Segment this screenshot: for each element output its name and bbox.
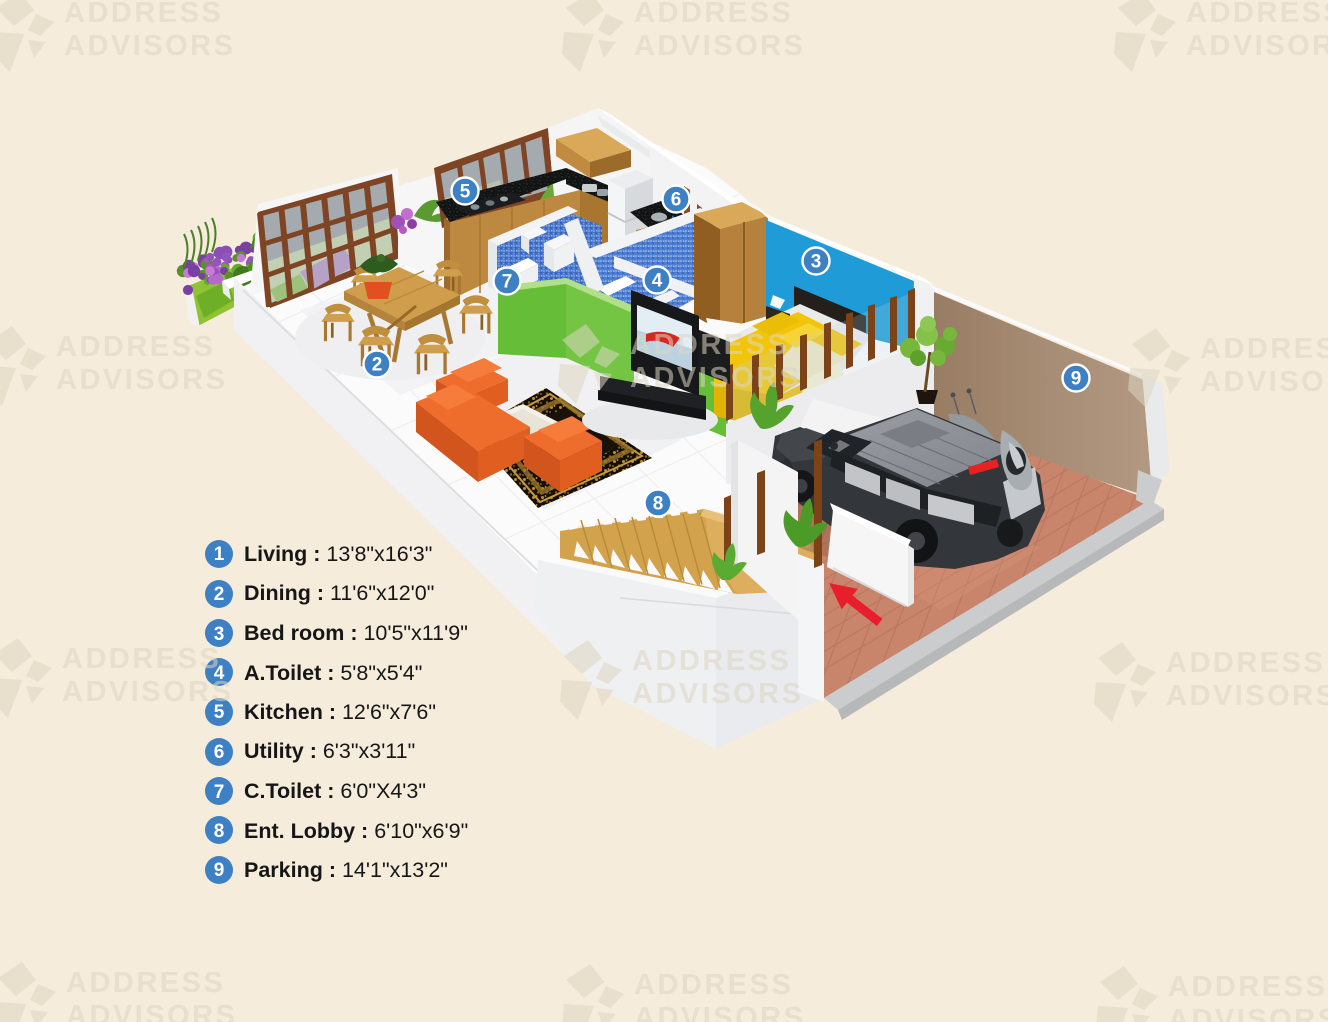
svg-text:ADDRESS: ADDRESS — [634, 0, 793, 29]
svg-text:ADDRESS: ADDRESS — [56, 331, 215, 363]
svg-text:Parking : 14'1"x13'2": Parking : 14'1"x13'2" — [244, 858, 448, 882]
svg-text:ADVISORS: ADVISORS — [62, 676, 233, 708]
svg-text:ADDRESS: ADDRESS — [1186, 0, 1328, 29]
svg-text:ADDRESS: ADDRESS — [1168, 971, 1327, 1003]
svg-text:ADVISORS: ADVISORS — [634, 1002, 805, 1022]
svg-text:ADDRESS: ADDRESS — [62, 643, 221, 675]
svg-text:C.Toilet : 6'0"X4'3": C.Toilet : 6'0"X4'3" — [244, 779, 426, 803]
svg-text:9: 9 — [214, 860, 225, 881]
svg-text:3: 3 — [214, 624, 225, 645]
svg-text:ADDRESS: ADDRESS — [632, 645, 791, 677]
svg-text:ADVISORS: ADVISORS — [634, 30, 805, 62]
svg-text:7: 7 — [502, 272, 513, 293]
svg-text:ADDRESS: ADDRESS — [1166, 647, 1325, 679]
svg-text:ADDRESS: ADDRESS — [634, 969, 793, 1001]
svg-text:ADVISORS: ADVISORS — [1166, 680, 1328, 712]
svg-text:8: 8 — [653, 494, 664, 515]
svg-text:ADVISORS: ADVISORS — [630, 362, 801, 394]
svg-text:Ent. Lobby : 6'10"x6'9": Ent. Lobby : 6'10"x6'9" — [244, 819, 468, 843]
svg-text:ADVISORS: ADVISORS — [632, 678, 803, 710]
svg-text:2: 2 — [214, 584, 225, 605]
svg-text:Dining : 11'6"x12'0": Dining : 11'6"x12'0" — [244, 581, 434, 605]
svg-text:ADVISORS: ADVISORS — [56, 364, 227, 396]
svg-text:ADDRESS: ADDRESS — [64, 0, 223, 29]
svg-text:ADVISORS: ADVISORS — [1168, 1004, 1328, 1022]
svg-text:6: 6 — [214, 742, 225, 763]
svg-text:ADVISORS: ADVISORS — [1200, 366, 1328, 398]
svg-text:Living : 13'8"x16'3": Living : 13'8"x16'3" — [244, 542, 432, 566]
svg-text:ADVISORS: ADVISORS — [64, 30, 235, 62]
svg-text:3: 3 — [811, 252, 822, 273]
svg-text:ADVISORS: ADVISORS — [1186, 30, 1328, 62]
svg-text:5: 5 — [460, 182, 471, 203]
svg-text:ADDRESS: ADDRESS — [66, 967, 225, 999]
svg-text:ADDRESS: ADDRESS — [1200, 333, 1328, 365]
svg-text:Utility : 6'3"x3'11": Utility : 6'3"x3'11" — [244, 739, 415, 763]
svg-text:4: 4 — [652, 271, 663, 292]
svg-text:9: 9 — [1071, 369, 1082, 390]
svg-text:A.Toilet : 5'8"x5'4": A.Toilet : 5'8"x5'4" — [244, 661, 422, 685]
svg-text:2: 2 — [372, 355, 383, 376]
svg-text:7: 7 — [214, 782, 225, 803]
svg-text:1: 1 — [214, 544, 225, 565]
svg-text:8: 8 — [214, 821, 225, 842]
svg-text:Bed room : 10'5"x11'9": Bed room : 10'5"x11'9" — [244, 621, 468, 645]
svg-text:ADDRESS: ADDRESS — [630, 329, 789, 361]
svg-text:6: 6 — [671, 190, 682, 211]
svg-text:ADVISORS: ADVISORS — [66, 1000, 237, 1022]
svg-text:Kitchen : 12'6"x7'6": Kitchen : 12'6"x7'6" — [244, 700, 436, 724]
